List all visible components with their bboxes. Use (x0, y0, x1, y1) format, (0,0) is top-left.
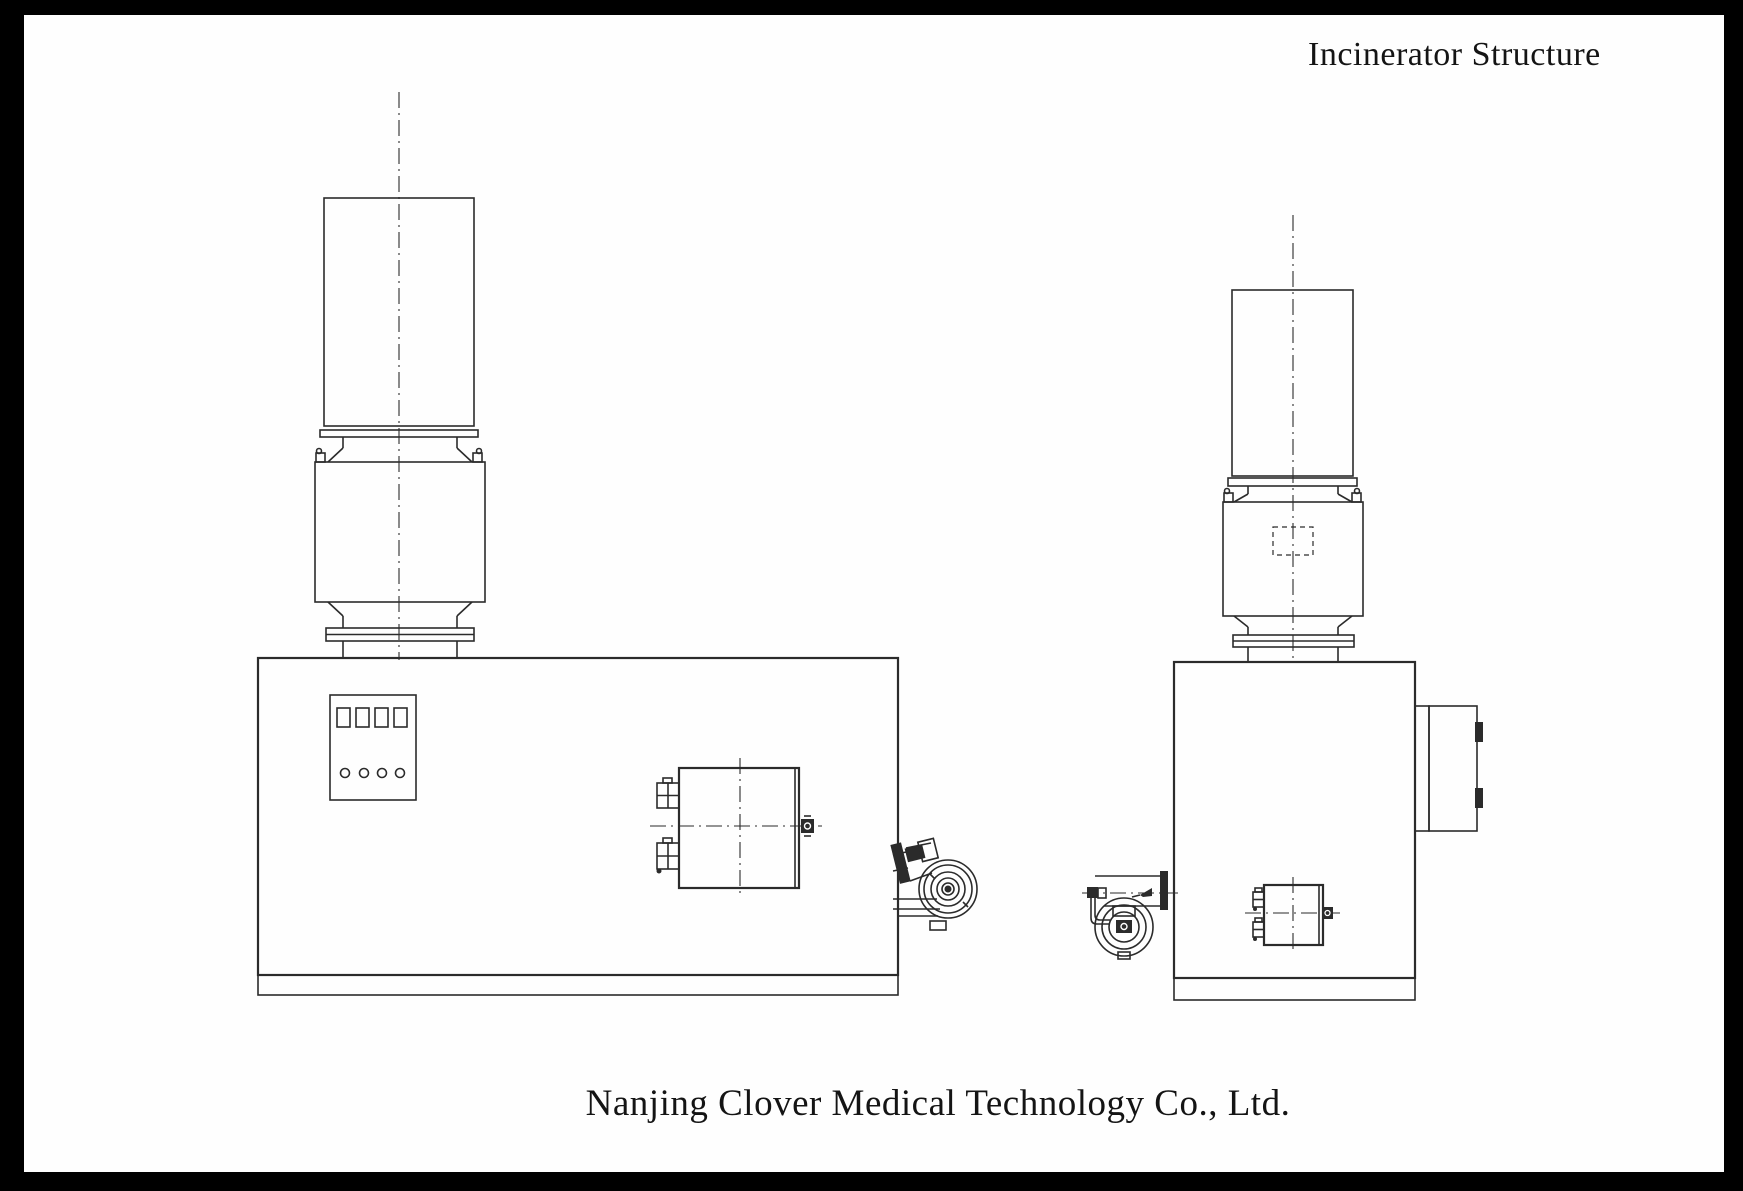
panel-knob (396, 769, 405, 778)
indicator-window (394, 708, 407, 727)
base-skid (258, 975, 898, 995)
panel-knob (378, 769, 387, 778)
front-view (1082, 215, 1483, 1000)
door-hinge (1475, 788, 1483, 808)
burner-box (1245, 877, 1340, 952)
side-view (258, 92, 977, 995)
company-name: Nanjing Clover Medical Technology Co., L… (132, 1082, 1743, 1125)
loading-door (1415, 706, 1483, 831)
secondary-chamber (315, 462, 485, 658)
incinerator-structure-drawing (0, 0, 1743, 1191)
sight-fitting (1322, 907, 1333, 919)
oil-burner (1082, 871, 1178, 959)
panel-knob (341, 769, 350, 778)
indicator-window (356, 708, 369, 727)
main-chamber-body (1174, 662, 1415, 1000)
burner-box (650, 758, 822, 898)
drawing-sheet: Incinerator Structure (0, 0, 1743, 1191)
door-hinge (1475, 722, 1483, 742)
draft-fan (890, 838, 977, 930)
indicator-window (375, 708, 388, 727)
indicator-window (337, 708, 350, 727)
sight-fitting (801, 816, 814, 836)
page-title: Incinerator Structure (1308, 36, 1601, 74)
panel-knob (360, 769, 369, 778)
base-skid (1174, 978, 1415, 1000)
control-panel (330, 695, 416, 800)
